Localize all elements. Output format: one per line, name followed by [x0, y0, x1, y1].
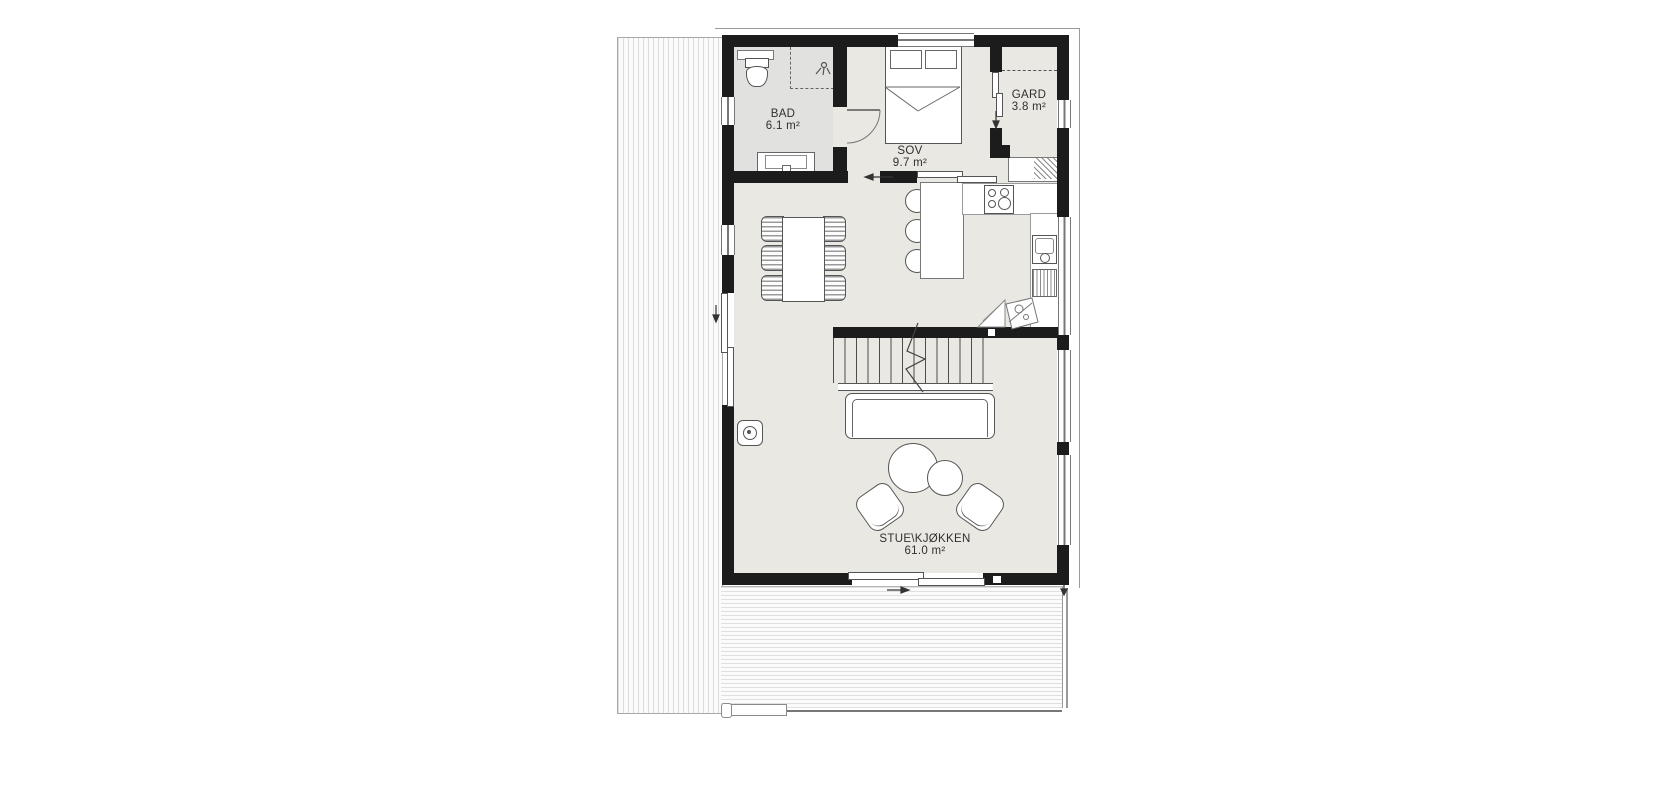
deck-step	[730, 704, 787, 716]
wall	[990, 38, 1002, 72]
bed-pillow-right	[925, 50, 957, 69]
window	[1058, 350, 1071, 442]
sink-bowl	[1035, 238, 1054, 254]
window	[721, 97, 735, 125]
sink-faucet	[1040, 253, 1050, 263]
stairs-icon	[833, 338, 993, 383]
wall	[1057, 128, 1069, 217]
burner-1	[988, 189, 996, 197]
front-deck-edge	[785, 710, 1062, 712]
window	[721, 225, 735, 255]
burner-2	[1000, 188, 1009, 197]
room-name: SOV	[897, 145, 922, 157]
wall	[722, 35, 900, 47]
wardrobe-rail	[1002, 70, 1057, 71]
side-deck	[617, 37, 723, 714]
deck-corner-post	[721, 703, 732, 718]
wood-stove-dot	[747, 430, 751, 434]
bed-pillow-left	[890, 50, 922, 69]
room-area: 9.7 m²	[893, 157, 927, 169]
window	[1058, 455, 1071, 545]
room-name: STUE\KJØKKEN	[879, 533, 970, 545]
window	[1058, 100, 1071, 128]
wall	[833, 47, 847, 107]
room-name: BAD	[771, 108, 796, 120]
coffee-table-small	[927, 460, 963, 496]
wall	[833, 147, 847, 171]
wall	[1057, 442, 1069, 455]
room-label-stue-kjokken: STUE\KJØKKEN 61.0 m²	[879, 533, 970, 557]
floor-plan: BAD 6.1 m² SOV 9.7 m² GARD 3.8 m² STUE\K…	[615, 25, 1080, 720]
wall	[722, 405, 734, 585]
dining-chair-2	[761, 245, 784, 271]
dining-chair-3	[761, 275, 784, 301]
sliding-door	[957, 176, 997, 183]
room-label-bad: BAD 6.1 m²	[766, 108, 800, 132]
wall	[972, 35, 1069, 47]
front-deck	[721, 586, 1063, 708]
dining-chair-5	[823, 245, 846, 271]
room-area: 6.1 m²	[766, 120, 800, 132]
burner-4	[998, 197, 1011, 210]
wall	[722, 573, 852, 585]
wall	[722, 171, 848, 183]
dining-chair-1	[761, 216, 784, 242]
sliding-door	[721, 293, 728, 353]
room-area: 3.8 m²	[1012, 101, 1046, 113]
wall	[722, 255, 734, 293]
deck-right-edge-line	[1066, 588, 1068, 708]
room-name: GARD	[1012, 89, 1046, 101]
sliding-door	[996, 93, 1003, 117]
dining-table	[782, 217, 825, 302]
wall-notch	[988, 329, 995, 336]
sofa-back-line	[852, 399, 988, 437]
wall	[990, 145, 1010, 158]
room-label-gard: GARD 3.8 m²	[1012, 89, 1046, 113]
wall-notch	[993, 576, 1001, 583]
toilet-bowl	[746, 66, 768, 87]
kitchen-island	[920, 182, 964, 279]
dishwasher	[1032, 269, 1057, 297]
room-area: 61.0 m²	[904, 545, 945, 557]
window	[1058, 217, 1071, 335]
dining-chair-6	[823, 275, 846, 301]
wall	[880, 171, 917, 183]
window	[898, 33, 974, 47]
shower-area	[790, 47, 834, 89]
sliding-door	[918, 578, 985, 586]
sliding-door	[848, 572, 924, 580]
wall	[1057, 38, 1069, 100]
room-label-sov: SOV 9.7 m²	[893, 145, 927, 169]
wardrobe-bench-hatch	[1034, 158, 1059, 179]
floor-plan-canvas: BAD 6.1 m² SOV 9.7 m² GARD 3.8 m² STUE\K…	[0, 0, 1670, 800]
wall	[722, 35, 734, 97]
sliding-door	[727, 347, 734, 407]
wall	[833, 327, 1063, 338]
dining-chair-4	[823, 216, 846, 242]
stairs-rail	[838, 383, 993, 391]
burner-3	[988, 200, 996, 208]
